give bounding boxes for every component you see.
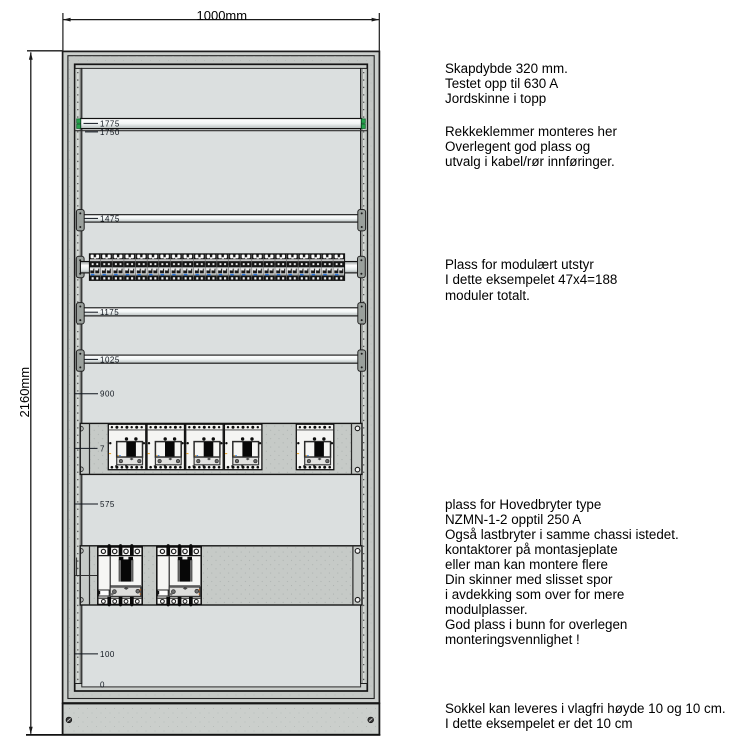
svg-text:1475: 1475 <box>100 214 120 223</box>
svg-text:1175: 1175 <box>100 308 119 317</box>
svg-text:2160mm: 2160mm <box>17 367 32 418</box>
svg-text:1000mm: 1000mm <box>197 8 248 23</box>
svg-text:7: 7 <box>100 444 105 453</box>
svg-text:100: 100 <box>100 650 115 659</box>
svg-text:900: 900 <box>100 390 115 399</box>
svg-text:1025: 1025 <box>100 355 120 364</box>
svg-text:575: 575 <box>100 500 115 509</box>
svg-text:1750: 1750 <box>100 128 120 137</box>
svg-text:0: 0 <box>100 681 105 690</box>
